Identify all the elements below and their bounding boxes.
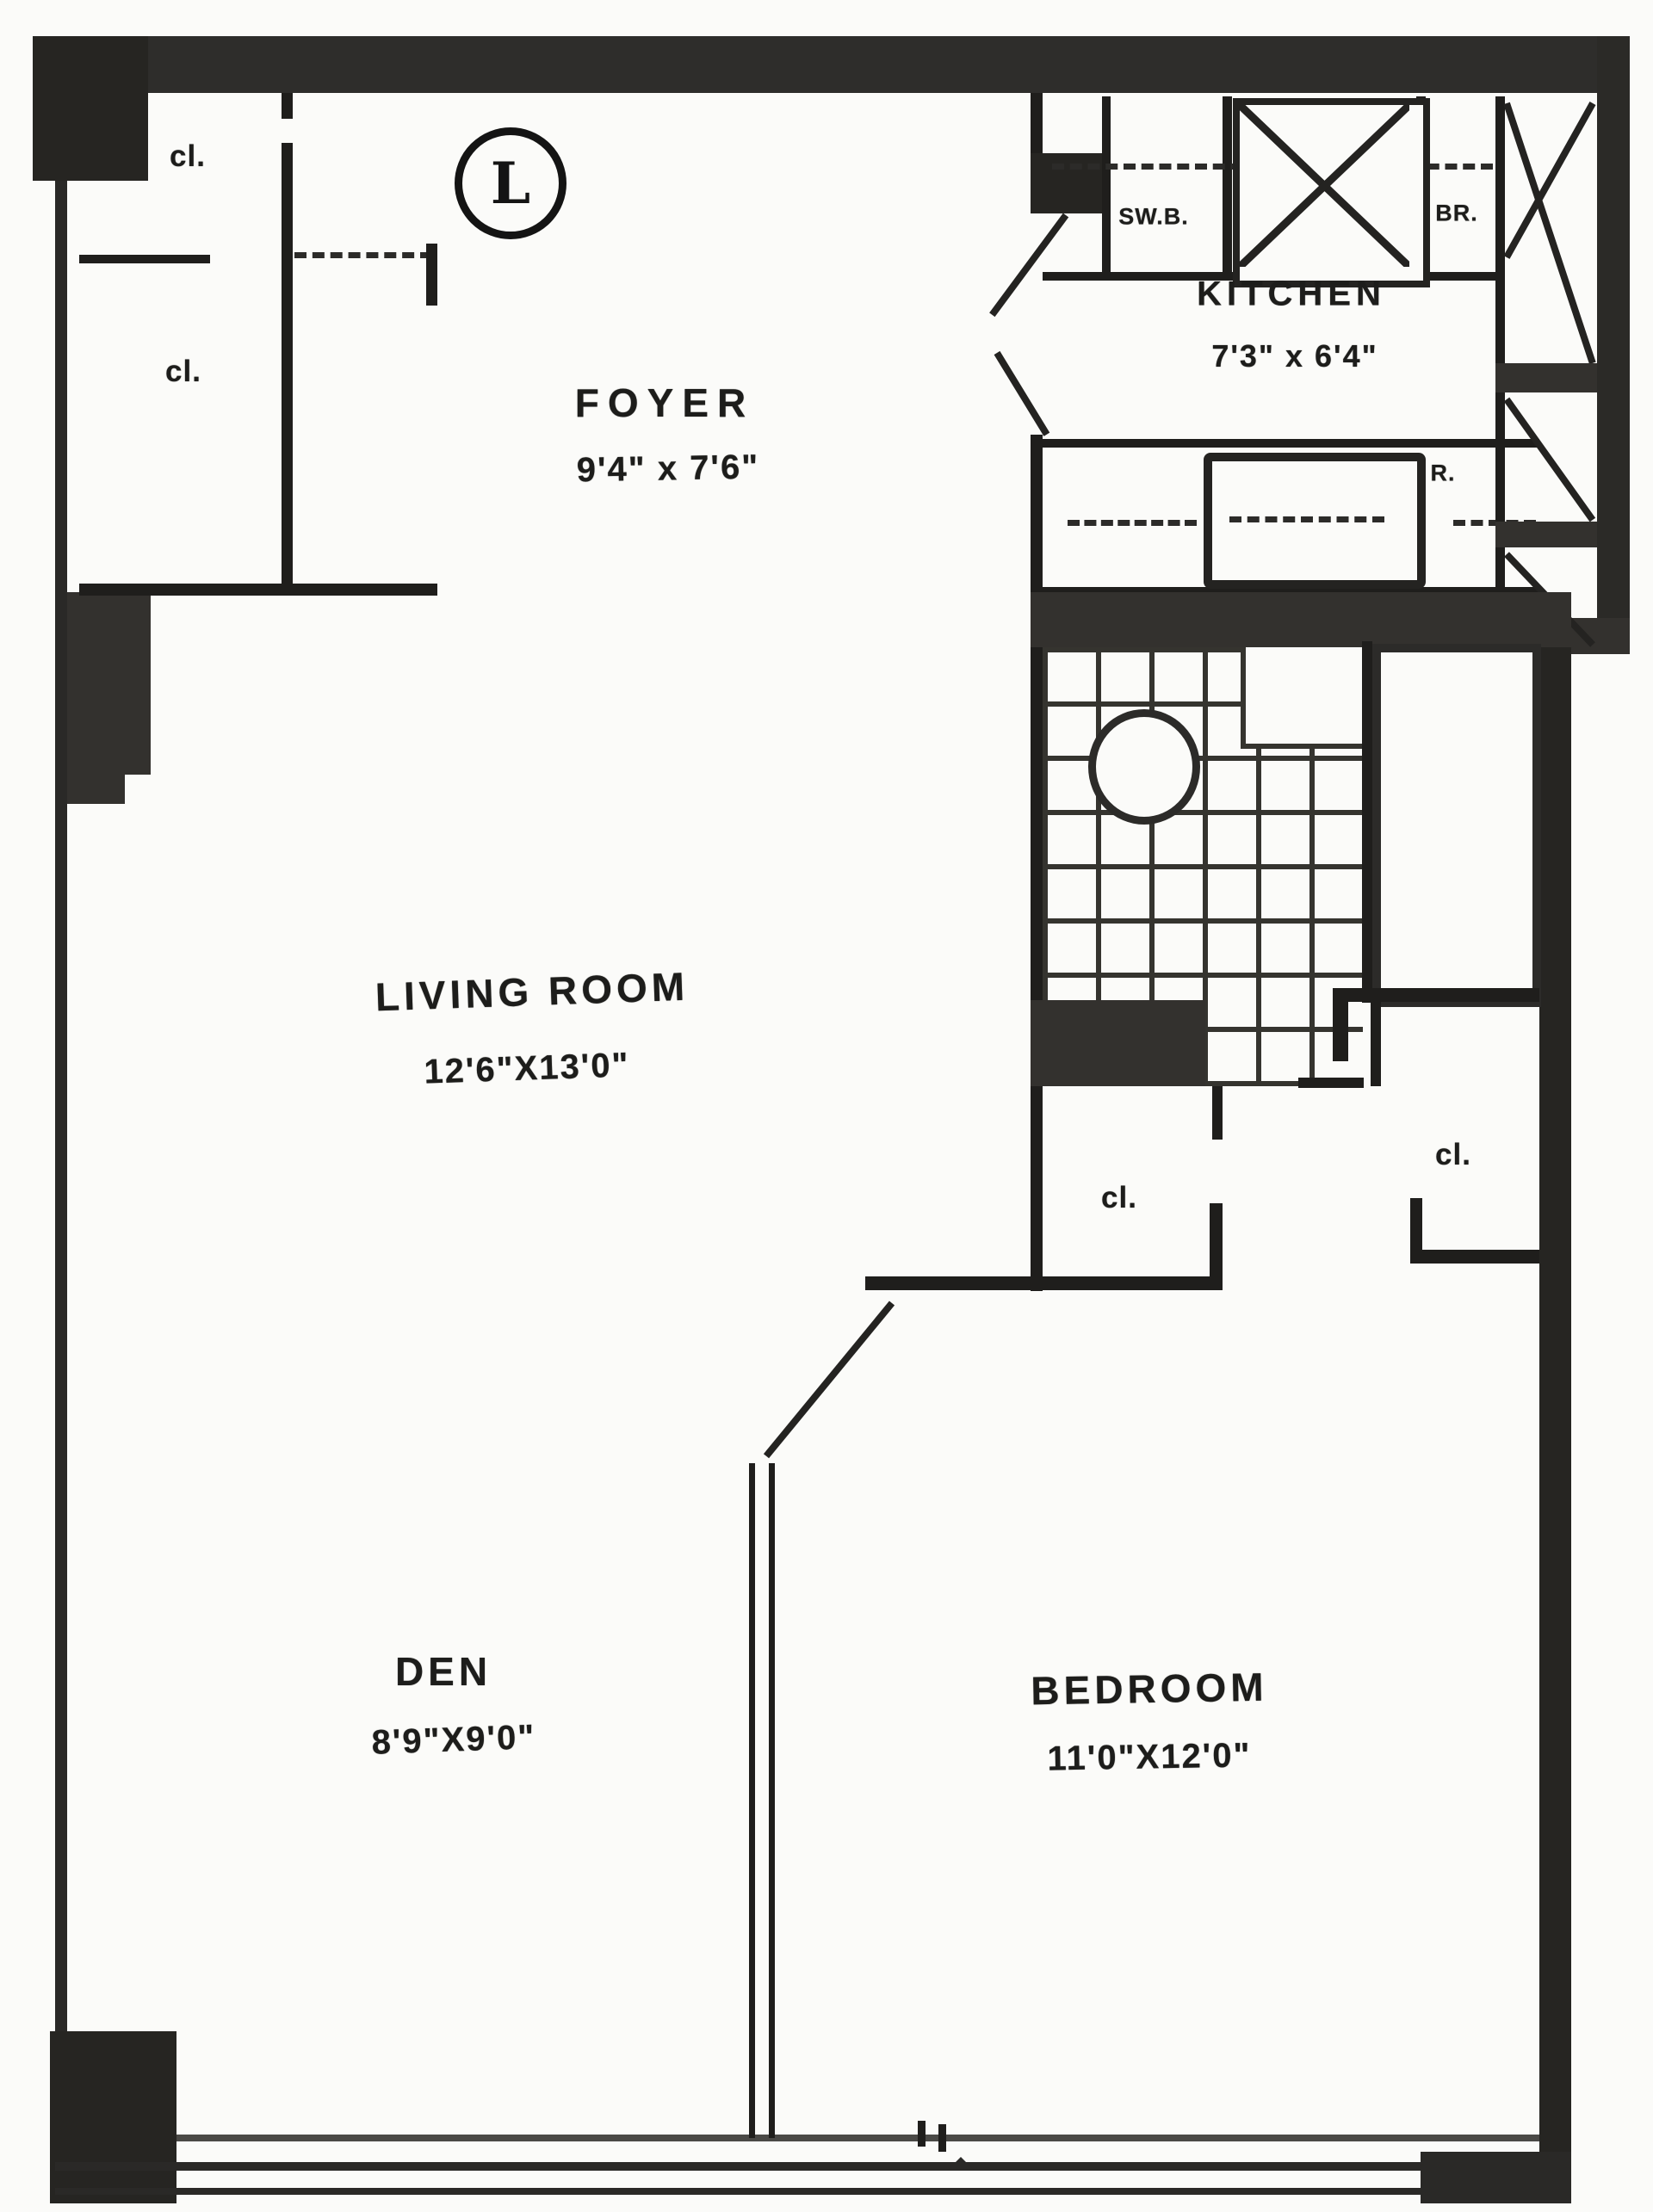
cabinet-diagonal	[1504, 398, 1595, 522]
pier-left-middle-step	[67, 773, 125, 804]
window-band-inner-line	[176, 2135, 1539, 2141]
kitchen-sink-box	[1233, 98, 1430, 287]
room-dims-kitchen: 7'3" x 6'4"	[1211, 338, 1377, 374]
kitchen-entry-pier	[1031, 153, 1104, 213]
window-mullion-tick	[938, 2124, 946, 2152]
closet-bottom-wall	[79, 584, 437, 596]
room-label-living-room: LIVING ROOM	[375, 963, 690, 1021]
window-band-mid-line	[55, 2162, 1539, 2171]
kitchen-left-wall-upper	[1031, 93, 1043, 158]
room-label-foyer: FOYER	[575, 380, 754, 426]
pier-top-left	[33, 36, 148, 181]
bathtub	[1372, 644, 1541, 1007]
bedroom-closet-left-wall	[1371, 1000, 1381, 1086]
unit-letter: L	[491, 150, 530, 217]
bedroom-closet-stub	[1410, 1198, 1422, 1264]
refrigerator-label: R.	[1431, 460, 1456, 487]
room-label-den: DEN	[395, 1648, 492, 1695]
cabinet-shelf-band	[1495, 363, 1597, 392]
kitchen-cabinet-right-label: BR.	[1435, 201, 1478, 227]
bath-basin-circle	[1088, 709, 1200, 825]
bedroom-closet-bottom-wall	[1410, 1250, 1539, 1264]
room-label-bedroom: BEDROOM	[1031, 1664, 1268, 1715]
range-dashed-line	[1229, 516, 1384, 522]
room-dims-den: 8'9"X9'0"	[371, 1718, 536, 1763]
closet-stub-wall	[426, 244, 437, 306]
sink-x-mark	[1240, 105, 1409, 267]
bath-bottom-wall-chunk	[1031, 1000, 1205, 1086]
kitchen-cabinet-left-label: SW.B.	[1118, 204, 1189, 231]
den-bedroom-partition-line	[769, 1463, 775, 2138]
wall-right-lower	[1539, 641, 1571, 2203]
closet-divider-wall	[79, 255, 210, 263]
hall-closet-right-wall-upper	[1212, 1086, 1223, 1140]
closet-label: cl.	[1435, 1138, 1471, 1172]
bath-door-side-wall	[1298, 1078, 1364, 1088]
bath-vanity-area	[1241, 647, 1368, 749]
pier-bottom-left	[50, 2031, 176, 2203]
pier-left-middle	[67, 592, 151, 775]
wall-band-kitchen-bottom	[1031, 592, 1571, 647]
wall-left	[55, 36, 67, 2203]
wall-right-kitchen-block	[1597, 36, 1630, 654]
closet-label: cl.	[170, 139, 206, 174]
room-dims-bedroom: 11'0"X12'0"	[1047, 1736, 1252, 1778]
corner-block-bottom-right	[1421, 2152, 1571, 2203]
window-mullion-tick	[918, 2121, 926, 2147]
hall-closet-left-wall	[1031, 1086, 1043, 1291]
hall-closet-right-stub	[1210, 1203, 1223, 1281]
kitchen-cabinet-left-edge	[1102, 96, 1111, 277]
kitchen-left-wall-lower	[1031, 435, 1043, 598]
tub-left-wall	[1362, 641, 1372, 1003]
kitchen-entry-angled-wall-upper	[989, 213, 1068, 318]
floor-plan: cl. cl. L FOYER 9'4" x 7'6" SW.B. BR. KI…	[0, 0, 1653, 2212]
kitchen-cabinet-separator	[1223, 96, 1232, 275]
cabinet-shelf-band	[1495, 522, 1597, 547]
closet-shelf-dashed-line	[294, 252, 432, 258]
wall-top	[47, 36, 1630, 93]
unit-letter-badge: L	[455, 127, 566, 239]
closet-label: cl.	[1101, 1181, 1137, 1215]
den-bedroom-partition-line	[749, 1463, 755, 2138]
room-dims-living-room: 12'6"X13'0"	[424, 1046, 631, 1091]
living-room-south-wall	[865, 1276, 1223, 1290]
closet-partition-right-lower	[282, 143, 293, 596]
bedroom-door-swing	[764, 1301, 895, 1458]
window-sill-mark	[947, 2157, 975, 2171]
closet-label: cl.	[165, 355, 201, 389]
counter-dashed-line-left	[1068, 520, 1197, 526]
tub-bottom-wall	[1333, 988, 1539, 1002]
room-dims-foyer: 9'4" x 7'6"	[576, 448, 759, 491]
kitchen-entry-angled-wall-lower	[994, 351, 1050, 436]
room-label-kitchen: KITCHEN	[1197, 275, 1386, 314]
closet-partition-right-upper	[282, 93, 293, 119]
kitchen-counter-lower-top-line	[1043, 439, 1539, 448]
tub-wall-hook-stub	[1333, 988, 1348, 1061]
window-band-outer-line	[55, 2188, 1539, 2195]
